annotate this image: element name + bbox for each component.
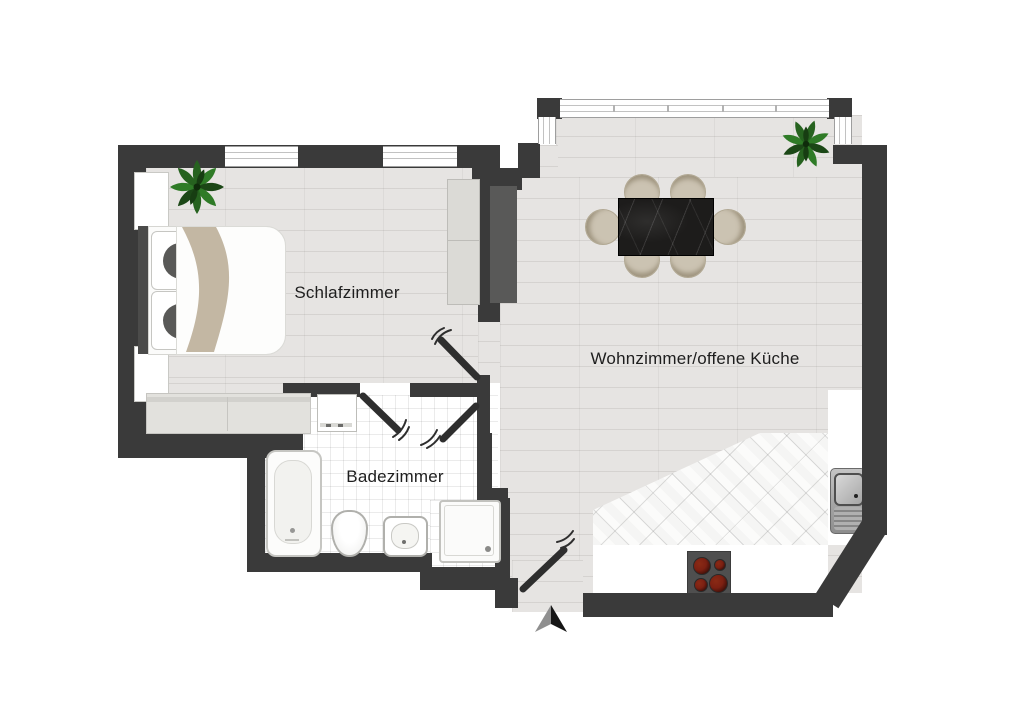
door-swing-bathroom-left bbox=[363, 396, 409, 440]
bed-blanket bbox=[182, 227, 229, 352]
room-label-badezimmer: Badezimmer bbox=[346, 467, 443, 487]
plant-icon bbox=[170, 160, 224, 214]
wall-chamfer bbox=[827, 527, 874, 601]
room-label-schlafzimmer: Schlafzimmer bbox=[294, 283, 399, 303]
plan-overlay bbox=[0, 0, 1024, 724]
room-label-wohnzimmer-kueche: Wohnzimmer/offene Küche bbox=[590, 349, 799, 369]
door-swing-bedroom bbox=[432, 328, 477, 377]
door-swings bbox=[363, 328, 574, 589]
north-arrow bbox=[535, 605, 567, 632]
plant-icon bbox=[781, 119, 830, 168]
door-swing-entrance bbox=[523, 531, 574, 589]
door-swing-bathroom-right bbox=[421, 406, 476, 448]
floor-plan: Schlafzimmer Badezimmer Wohnzimmer/offen… bbox=[0, 0, 1024, 724]
